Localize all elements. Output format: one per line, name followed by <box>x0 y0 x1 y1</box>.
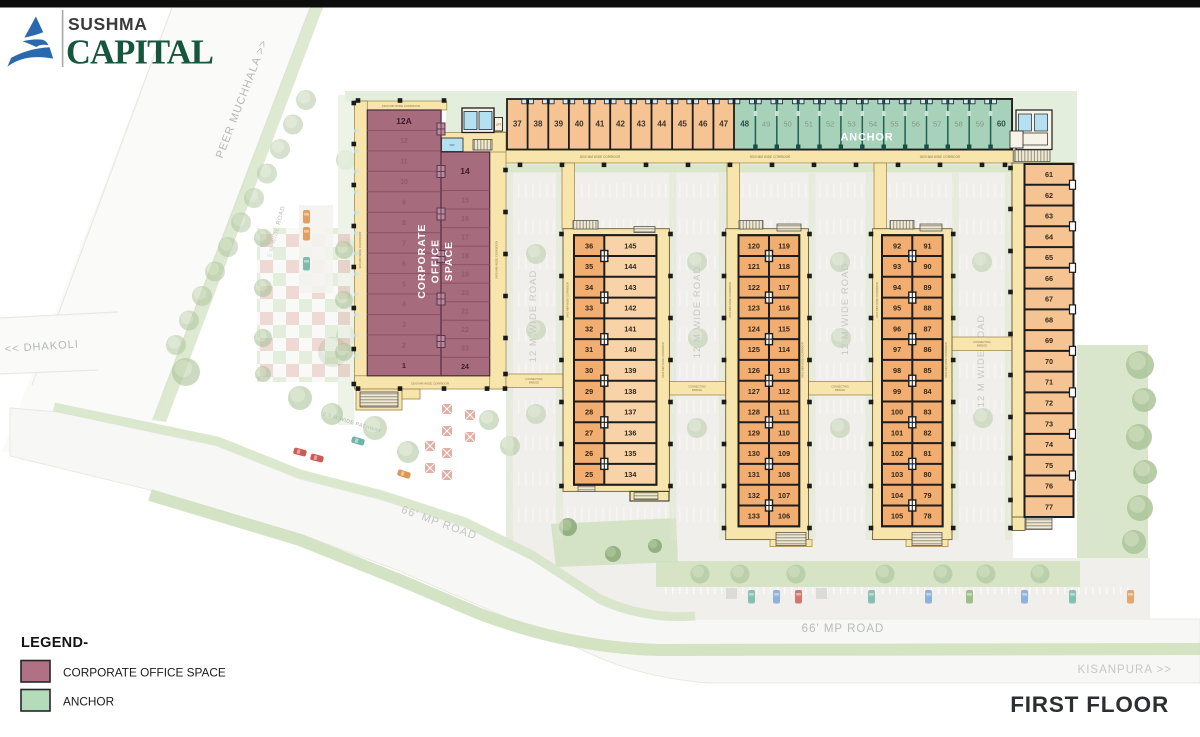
svg-text:31: 31 <box>585 345 593 354</box>
svg-text:1: 1 <box>402 363 406 370</box>
svg-text:12A: 12A <box>396 116 412 126</box>
svg-text:94: 94 <box>893 283 902 292</box>
svg-text:CONNECTING: CONNECTING <box>831 385 848 389</box>
svg-text:3: 3 <box>402 322 406 329</box>
svg-text:139: 139 <box>624 366 636 375</box>
svg-text:83: 83 <box>923 408 931 417</box>
svg-text:2400 MM WIDE CORRIDOR: 2400 MM WIDE CORRIDOR <box>875 282 879 318</box>
svg-text:92: 92 <box>893 241 901 250</box>
svg-text:50: 50 <box>783 120 791 129</box>
svg-text:8: 8 <box>402 220 406 227</box>
svg-text:6: 6 <box>402 261 406 268</box>
svg-text:118: 118 <box>778 262 790 271</box>
svg-text:115: 115 <box>778 325 790 334</box>
svg-text:BRIDGE: BRIDGE <box>977 344 987 348</box>
svg-text:65: 65 <box>1045 253 1053 262</box>
svg-text:69: 69 <box>1045 336 1053 345</box>
svg-text:60: 60 <box>997 120 1006 129</box>
svg-text:39: 39 <box>554 120 563 129</box>
svg-text:3000 MM WIDE CORRIDOR: 3000 MM WIDE CORRIDOR <box>920 155 961 159</box>
svg-text:133: 133 <box>748 512 760 521</box>
svg-text:18: 18 <box>461 253 469 260</box>
svg-text:114: 114 <box>778 345 791 354</box>
svg-text:137: 137 <box>624 408 636 417</box>
svg-text:121: 121 <box>748 262 760 271</box>
svg-text:25: 25 <box>585 470 593 479</box>
svg-text:127: 127 <box>748 387 760 396</box>
svg-text:32: 32 <box>585 325 593 334</box>
svg-text:4: 4 <box>402 302 406 309</box>
svg-text:38: 38 <box>534 120 543 129</box>
svg-text:CORPORATE OFFICE SPACE: CORPORATE OFFICE SPACE <box>63 666 226 680</box>
svg-text:7: 7 <box>402 240 406 247</box>
svg-text:134: 134 <box>624 470 637 479</box>
svg-text:97: 97 <box>893 345 901 354</box>
svg-text:24: 24 <box>461 364 469 371</box>
svg-text:12 M WIDE ROAD: 12 M WIDE ROAD <box>692 266 703 359</box>
svg-text:90: 90 <box>923 262 931 271</box>
svg-text:1500 MM WIDE CORRIDOR: 1500 MM WIDE CORRIDOR <box>382 104 421 108</box>
svg-text:10: 10 <box>400 179 408 186</box>
svg-text:79: 79 <box>923 491 931 500</box>
svg-text:52: 52 <box>826 120 834 129</box>
svg-text:74: 74 <box>1045 440 1054 449</box>
svg-text:12 M WIDE ROAD: 12 M WIDE ROAD <box>528 270 539 363</box>
svg-text:119: 119 <box>778 241 790 250</box>
svg-text:109: 109 <box>778 449 790 458</box>
svg-text:78: 78 <box>923 512 931 521</box>
svg-text:102: 102 <box>891 449 903 458</box>
svg-text:17: 17 <box>461 234 469 241</box>
svg-text:35: 35 <box>585 262 593 271</box>
svg-text:26: 26 <box>585 449 593 458</box>
svg-text:76: 76 <box>1045 482 1053 491</box>
svg-text:91: 91 <box>923 241 931 250</box>
svg-text:CORPORATE: CORPORATE <box>417 223 428 298</box>
svg-text:106: 106 <box>778 512 790 521</box>
svg-text:55: 55 <box>890 120 898 129</box>
svg-text:40: 40 <box>575 120 584 129</box>
svg-text:75: 75 <box>1045 461 1053 470</box>
svg-text:63: 63 <box>1045 212 1053 221</box>
svg-text:33: 33 <box>585 304 593 313</box>
svg-text:900 MM WIDE CORRIDOR: 900 MM WIDE CORRIDOR <box>358 231 362 269</box>
svg-text:101: 101 <box>891 428 903 437</box>
svg-text:129: 129 <box>748 428 760 437</box>
svg-text:43: 43 <box>637 120 646 129</box>
svg-text:103: 103 <box>891 470 903 479</box>
svg-text:131: 131 <box>748 470 760 479</box>
svg-text:27: 27 <box>585 428 593 437</box>
svg-text:29: 29 <box>585 387 593 396</box>
svg-text:145: 145 <box>624 241 636 250</box>
svg-text:KISANPURA >>: KISANPURA >> <box>1078 664 1172 676</box>
svg-text:34: 34 <box>585 283 594 292</box>
svg-text:20: 20 <box>461 290 469 297</box>
svg-text:36: 36 <box>585 241 593 250</box>
svg-text:64: 64 <box>1045 232 1054 241</box>
svg-text:93: 93 <box>893 262 901 271</box>
svg-text:28: 28 <box>585 408 593 417</box>
svg-text:61: 61 <box>1045 170 1053 179</box>
svg-text:144: 144 <box>624 262 637 271</box>
svg-text:56: 56 <box>912 120 920 129</box>
svg-text:FIRST FLOOR: FIRST FLOOR <box>1010 692 1169 717</box>
svg-text:86: 86 <box>923 345 931 354</box>
svg-text:80: 80 <box>923 470 931 479</box>
svg-text:37: 37 <box>513 120 522 129</box>
svg-text:87: 87 <box>923 325 931 334</box>
svg-text:66' MP ROAD: 66' MP ROAD <box>802 623 885 635</box>
svg-text:120: 120 <box>748 241 760 250</box>
svg-text:112: 112 <box>778 387 790 396</box>
svg-text:CONNECTING: CONNECTING <box>688 385 705 389</box>
svg-text:45: 45 <box>678 120 687 129</box>
svg-text:110: 110 <box>778 428 790 437</box>
svg-text:44: 44 <box>657 120 666 129</box>
svg-text:71: 71 <box>1045 378 1053 387</box>
svg-text:42: 42 <box>616 120 625 129</box>
svg-text:68: 68 <box>1045 315 1053 324</box>
svg-text:WR: WR <box>450 143 456 147</box>
svg-text:2400 MM WIDE CORRIDOR: 2400 MM WIDE CORRIDOR <box>661 342 665 378</box>
svg-text:84: 84 <box>923 387 932 396</box>
svg-text:116: 116 <box>778 304 790 313</box>
svg-text:73: 73 <box>1045 419 1053 428</box>
svg-text:BRIDGE: BRIDGE <box>692 388 702 392</box>
svg-text:104: 104 <box>891 491 904 500</box>
svg-text:CAPITAL: CAPITAL <box>66 34 213 72</box>
svg-text:OFFICE: OFFICE <box>431 239 442 284</box>
svg-text:2400 MM WIDE CORRIDOR: 2400 MM WIDE CORRIDOR <box>800 342 804 378</box>
svg-text:9: 9 <box>402 200 406 207</box>
svg-text:11: 11 <box>400 159 408 166</box>
svg-text:136: 136 <box>624 428 636 437</box>
svg-text:58: 58 <box>954 120 962 129</box>
svg-text:123: 123 <box>748 304 760 313</box>
svg-text:47: 47 <box>719 120 728 129</box>
svg-text:132: 132 <box>748 491 760 500</box>
svg-text:1500 MM WIDE CORRIDOR: 1500 MM WIDE CORRIDOR <box>411 382 450 386</box>
svg-text:117: 117 <box>778 283 790 292</box>
svg-text:138: 138 <box>624 387 636 396</box>
svg-text:41: 41 <box>595 120 604 129</box>
svg-text:16: 16 <box>461 216 469 223</box>
svg-text:130: 130 <box>748 449 760 458</box>
svg-text:21: 21 <box>461 308 469 315</box>
svg-text:99: 99 <box>893 387 901 396</box>
svg-text:59: 59 <box>976 120 984 129</box>
svg-text:95: 95 <box>893 304 901 313</box>
svg-text:122: 122 <box>748 283 760 292</box>
svg-text:142: 142 <box>624 304 636 313</box>
svg-text:143: 143 <box>624 283 636 292</box>
svg-text:128: 128 <box>748 408 760 417</box>
svg-text:22: 22 <box>461 327 469 334</box>
svg-text:113: 113 <box>778 366 790 375</box>
svg-text:82: 82 <box>923 428 931 437</box>
svg-text:98: 98 <box>893 366 901 375</box>
svg-text:30: 30 <box>585 366 593 375</box>
svg-text:70: 70 <box>1045 357 1053 366</box>
svg-text:SPACE: SPACE <box>444 241 455 281</box>
svg-text:111: 111 <box>778 408 789 417</box>
svg-text:3000 MM WIDE CORRIDOR: 3000 MM WIDE CORRIDOR <box>750 155 791 159</box>
svg-text:124: 124 <box>748 325 761 334</box>
svg-text:85: 85 <box>923 366 931 375</box>
svg-text:135: 135 <box>624 449 636 458</box>
svg-text:100: 100 <box>891 408 903 417</box>
svg-text:12 M WIDE ROAD: 12 M WIDE ROAD <box>840 263 851 356</box>
svg-text:12 M WIDE ROAD: 12 M WIDE ROAD <box>976 315 987 408</box>
svg-text:81: 81 <box>923 449 931 458</box>
svg-text:66: 66 <box>1045 274 1053 283</box>
svg-text:140: 140 <box>624 345 636 354</box>
svg-text:ANCHOR: ANCHOR <box>63 695 114 709</box>
svg-text:125: 125 <box>748 345 760 354</box>
svg-text:LIFT: LIFT <box>496 123 502 127</box>
svg-text:23: 23 <box>461 346 469 353</box>
svg-text:2400 MM WIDE CORRIDOR: 2400 MM WIDE CORRIDOR <box>944 342 948 378</box>
svg-text:19: 19 <box>461 271 469 278</box>
svg-text:LEGEND-: LEGEND- <box>21 635 88 651</box>
svg-text:CONNECTING: CONNECTING <box>973 340 990 344</box>
svg-text:77: 77 <box>1045 502 1053 511</box>
svg-text:2400 MM WIDE CORRIDOR: 2400 MM WIDE CORRIDOR <box>495 240 499 279</box>
svg-text:107: 107 <box>778 491 790 500</box>
svg-text:108: 108 <box>778 470 790 479</box>
svg-text:14: 14 <box>460 166 470 176</box>
svg-text:2400 MM WIDE CORRIDOR: 2400 MM WIDE CORRIDOR <box>728 282 732 318</box>
svg-text:5: 5 <box>402 281 406 288</box>
svg-text:SUSHMA: SUSHMA <box>68 14 147 34</box>
svg-text:BRIDGE: BRIDGE <box>529 381 539 385</box>
svg-text:CONNECTING: CONNECTING <box>525 377 542 381</box>
svg-text:67: 67 <box>1045 295 1053 304</box>
svg-text:49: 49 <box>762 120 770 129</box>
svg-text:126: 126 <box>748 366 760 375</box>
svg-text:141: 141 <box>624 325 636 334</box>
svg-text:105: 105 <box>891 512 903 521</box>
svg-text:89: 89 <box>923 283 931 292</box>
svg-text:96: 96 <box>893 325 901 334</box>
svg-text:62: 62 <box>1045 191 1053 200</box>
svg-text:53: 53 <box>847 120 855 129</box>
svg-text:54: 54 <box>869 120 877 129</box>
svg-text:2: 2 <box>402 343 406 350</box>
svg-text:2400 MM WIDE CORRIDOR: 2400 MM WIDE CORRIDOR <box>566 282 570 318</box>
svg-text:46: 46 <box>699 120 708 129</box>
svg-text:3000 MM WIDE CORRIDOR: 3000 MM WIDE CORRIDOR <box>580 155 621 159</box>
svg-text:15: 15 <box>461 197 469 204</box>
svg-text:48: 48 <box>740 120 749 129</box>
svg-text:12: 12 <box>400 138 408 145</box>
svg-text:72: 72 <box>1045 399 1053 408</box>
svg-text:ANCHOR: ANCHOR <box>840 132 893 144</box>
svg-text:57: 57 <box>933 120 941 129</box>
svg-text:BRIDGE: BRIDGE <box>835 388 845 392</box>
svg-text:51: 51 <box>805 120 813 129</box>
svg-text:88: 88 <box>923 304 931 313</box>
